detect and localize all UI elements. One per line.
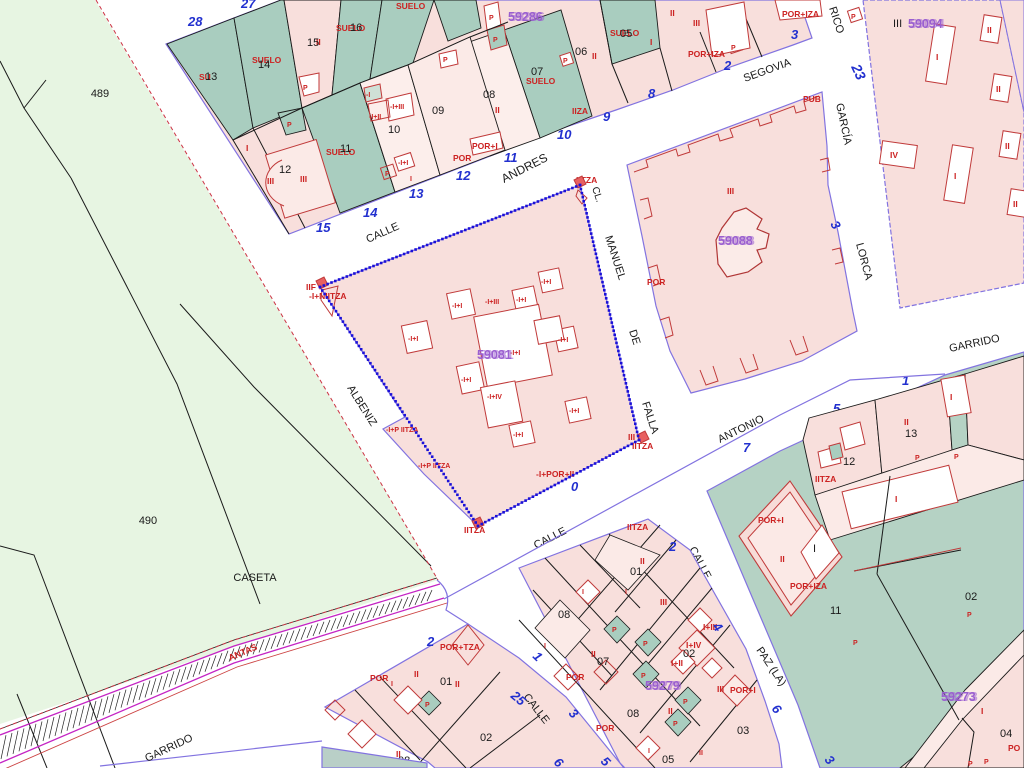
svg-text:05: 05: [620, 28, 632, 40]
svg-text:-I+NIITZA: -I+NIITZA: [309, 291, 347, 301]
svg-text:I: I: [246, 143, 248, 153]
svg-text:II: II: [668, 706, 673, 716]
svg-text:III: III: [660, 597, 667, 607]
svg-text:59081: 59081: [477, 348, 512, 362]
svg-text:II: II: [640, 556, 645, 566]
svg-text:PUB: PUB: [803, 94, 821, 104]
svg-text:59286: 59286: [508, 10, 543, 24]
svg-text:P: P: [489, 15, 494, 22]
svg-text:-I+II: -I+II: [369, 114, 381, 121]
svg-text:I: I: [954, 171, 956, 181]
svg-text:POR+IZA: POR+IZA: [782, 9, 819, 19]
svg-text:POR+I: POR+I: [472, 141, 498, 151]
svg-text:IIZA: IIZA: [572, 106, 588, 116]
svg-text:-I+I: -I+I: [541, 279, 551, 286]
svg-text:2: 2: [668, 539, 677, 554]
svg-text:I: I: [391, 681, 393, 688]
svg-text:I: I: [895, 494, 897, 504]
svg-text:-I: -I: [366, 92, 370, 99]
svg-text:I: I: [625, 589, 627, 596]
svg-text:1: 1: [902, 373, 909, 388]
svg-text:27: 27: [240, 0, 256, 11]
svg-text:P: P: [287, 122, 292, 129]
svg-text:III: III: [300, 174, 307, 184]
svg-text:15: 15: [307, 37, 319, 49]
svg-text:08: 08: [558, 609, 570, 621]
svg-text:I+II: I+II: [671, 658, 683, 668]
svg-text:28: 28: [187, 14, 203, 29]
svg-text:I: I: [950, 392, 952, 402]
svg-text:P: P: [673, 721, 678, 728]
svg-text:POR: POR: [647, 277, 665, 287]
svg-text:06: 06: [575, 46, 587, 58]
svg-text:3: 3: [791, 27, 799, 42]
svg-text:I: I: [410, 176, 412, 183]
svg-text:I: I: [981, 706, 983, 716]
svg-text:-I+I: -I+I: [569, 408, 579, 415]
svg-text:-I+III: -I+III: [390, 104, 404, 111]
svg-text:P: P: [967, 612, 972, 619]
svg-text:07: 07: [531, 66, 543, 78]
svg-text:III: III: [693, 18, 700, 28]
svg-text:-I+I: -I+I: [408, 336, 418, 343]
svg-text:II: II: [1005, 141, 1010, 151]
svg-text:P: P: [984, 759, 989, 766]
svg-text:P: P: [851, 14, 856, 21]
svg-text:I: I: [650, 37, 652, 47]
svg-text:-I+III: -I+III: [485, 299, 499, 306]
svg-text:II: II: [987, 25, 992, 35]
svg-text:08: 08: [627, 708, 639, 720]
svg-text:14: 14: [258, 59, 270, 71]
svg-text:07: 07: [597, 656, 609, 668]
svg-text:12: 12: [843, 456, 855, 468]
svg-text:SUELO: SUELO: [396, 1, 426, 11]
svg-text:01: 01: [440, 676, 452, 688]
svg-text:P: P: [493, 37, 498, 44]
svg-text:P: P: [643, 641, 648, 648]
svg-text:POR+I: POR+I: [758, 515, 784, 525]
svg-text:-I+I: -I+I: [398, 160, 408, 167]
svg-text:15: 15: [316, 220, 331, 235]
svg-text:7: 7: [743, 440, 751, 455]
svg-text:III: III: [727, 186, 734, 196]
svg-text:09: 09: [432, 105, 444, 117]
svg-text:P: P: [915, 455, 920, 462]
svg-text:POR: POR: [370, 673, 388, 683]
svg-text:II: II: [455, 679, 460, 689]
svg-text:II: II: [670, 8, 675, 18]
svg-text:P: P: [954, 454, 959, 461]
svg-text:490: 490: [139, 515, 157, 527]
svg-text:02: 02: [480, 732, 492, 744]
svg-text:P: P: [563, 58, 568, 65]
svg-text:01: 01: [630, 566, 642, 578]
svg-text:I: I: [544, 643, 546, 650]
svg-text:-I+I: -I+I: [452, 303, 462, 310]
svg-text:P: P: [425, 702, 430, 709]
svg-text:-I+I: -I+I: [516, 297, 526, 304]
svg-text:III: III: [893, 18, 902, 30]
svg-text:II: II: [396, 749, 401, 759]
svg-text:I+IV: I+IV: [686, 640, 702, 650]
svg-text:P: P: [612, 627, 617, 634]
svg-text:II: II: [996, 84, 1001, 94]
svg-text:-I+I: -I+I: [461, 377, 471, 384]
svg-text:13: 13: [905, 428, 917, 440]
svg-text:59088: 59088: [718, 234, 753, 248]
svg-text:59279: 59279: [645, 679, 680, 693]
svg-text:I: I: [648, 748, 650, 755]
svg-text:0: 0: [571, 479, 579, 494]
svg-text:11: 11: [830, 605, 841, 617]
svg-text:I: I: [813, 543, 816, 555]
svg-text:I: I: [582, 589, 584, 596]
svg-text:10: 10: [388, 124, 400, 136]
svg-text:-I+I: -I+I: [558, 337, 568, 344]
svg-text:2: 2: [426, 634, 435, 649]
svg-text:P: P: [683, 699, 688, 706]
svg-text:III: III: [717, 684, 724, 694]
svg-text:9: 9: [603, 109, 611, 124]
svg-text:05: 05: [662, 754, 674, 766]
svg-text:I: I: [936, 52, 938, 62]
svg-text:11: 11: [340, 143, 351, 155]
svg-text:IITZA: IITZA: [815, 474, 836, 484]
svg-text:P: P: [443, 57, 448, 64]
svg-text:-I+P IITZA: -I+P IITZA: [418, 463, 450, 470]
svg-text:14: 14: [363, 205, 378, 220]
svg-text:2: 2: [723, 58, 732, 73]
svg-text:P: P: [731, 45, 736, 52]
svg-text:II: II: [1013, 199, 1018, 209]
svg-text:POR: POR: [596, 723, 614, 733]
svg-text:P: P: [968, 761, 973, 768]
svg-text:59273: 59273: [941, 690, 976, 704]
svg-text:08: 08: [483, 89, 495, 101]
svg-text:II: II: [414, 669, 419, 679]
svg-text:II: II: [495, 105, 500, 115]
svg-text:IITZA: IITZA: [627, 522, 648, 532]
svg-text:13: 13: [205, 71, 217, 83]
svg-text:II: II: [780, 554, 785, 564]
svg-text:12: 12: [279, 164, 291, 176]
svg-text:II: II: [904, 417, 909, 427]
svg-text:12: 12: [456, 168, 471, 183]
svg-text:P: P: [303, 85, 308, 92]
svg-text:POR+IZA: POR+IZA: [790, 581, 827, 591]
svg-text:-I+IV: -I+IV: [487, 394, 502, 401]
svg-text:03: 03: [737, 725, 749, 737]
svg-text:10: 10: [557, 127, 572, 142]
svg-text:IV: IV: [890, 150, 898, 160]
svg-text:11: 11: [504, 150, 518, 165]
svg-text:P: P: [853, 640, 858, 647]
svg-text:POR: POR: [566, 672, 584, 682]
svg-text:POR: POR: [453, 153, 471, 163]
svg-text:04: 04: [1000, 728, 1012, 740]
svg-text:59094: 59094: [908, 17, 943, 31]
svg-text:8: 8: [648, 86, 656, 101]
svg-text:POR+I: POR+I: [730, 685, 756, 695]
svg-text:II: II: [591, 649, 596, 659]
svg-text:III: III: [267, 176, 274, 186]
svg-text:489: 489: [91, 88, 109, 100]
svg-text:II: II: [699, 750, 703, 757]
svg-text:II: II: [592, 51, 597, 61]
svg-text:13: 13: [409, 186, 424, 201]
svg-text:CASETA: CASETA: [233, 572, 277, 584]
svg-text:02: 02: [965, 591, 977, 603]
svg-text:PO: PO: [1008, 743, 1021, 753]
svg-text:P: P: [385, 171, 390, 178]
svg-text:16: 16: [350, 22, 362, 34]
svg-text:POR+TZA: POR+TZA: [440, 642, 480, 652]
svg-text:POR+IZA: POR+IZA: [688, 49, 725, 59]
svg-text:-I+I: -I+I: [513, 432, 523, 439]
